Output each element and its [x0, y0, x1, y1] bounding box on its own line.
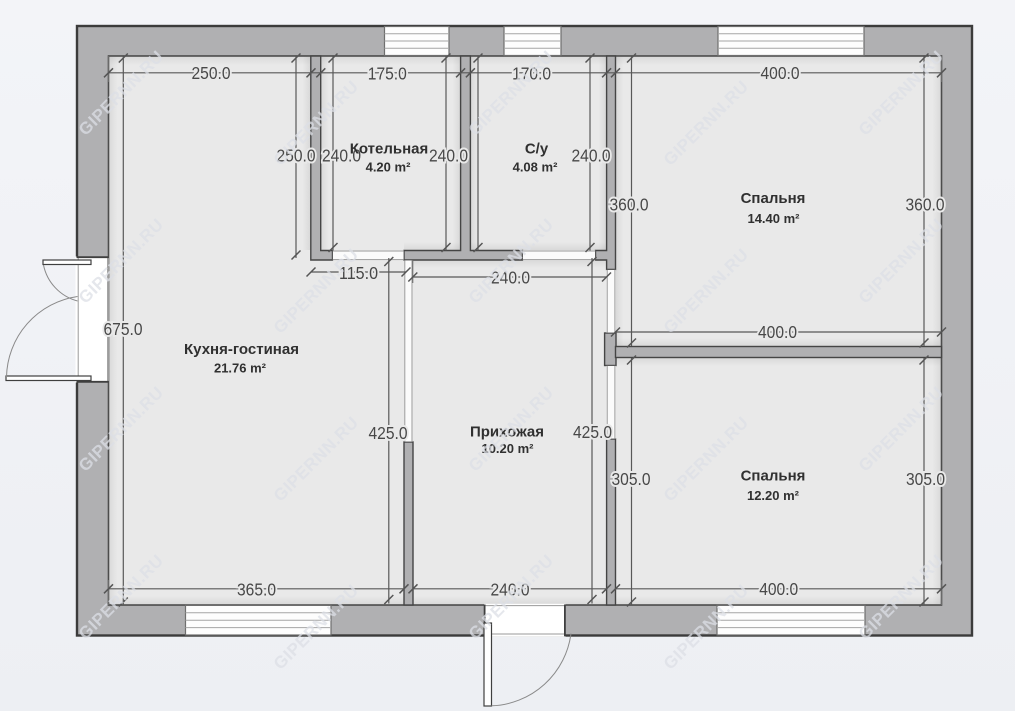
svg-text:365.0: 365.0 [237, 579, 276, 599]
svg-text:360.0: 360.0 [610, 194, 649, 214]
svg-text:4.20 m²: 4.20 m² [366, 159, 411, 174]
svg-text:240.0: 240.0 [572, 145, 611, 165]
svg-text:Спальня: Спальня [741, 468, 806, 485]
svg-text:400.0: 400.0 [758, 322, 797, 342]
svg-text:12.20 m²: 12.20 m² [747, 488, 800, 503]
svg-text:675.0: 675.0 [104, 319, 143, 339]
svg-text:175.0: 175.0 [368, 63, 407, 83]
svg-text:240.0: 240.0 [429, 145, 468, 165]
svg-text:14.40 m²: 14.40 m² [747, 211, 800, 226]
svg-text:425.0: 425.0 [369, 423, 408, 443]
svg-text:Кухня-гостиная: Кухня-гостиная [184, 341, 299, 358]
svg-text:Котельная: Котельная [350, 141, 429, 158]
svg-text:С/у: С/у [525, 141, 549, 158]
svg-text:425.0: 425.0 [573, 422, 612, 442]
svg-text:305.0: 305.0 [612, 469, 651, 489]
svg-text:400.0: 400.0 [759, 579, 798, 599]
svg-text:Спальня: Спальня [741, 190, 806, 207]
svg-text:21.76 m²: 21.76 m² [214, 360, 267, 375]
svg-text:250.0: 250.0 [192, 63, 231, 83]
svg-text:305.0: 305.0 [906, 469, 945, 489]
svg-text:400.0: 400.0 [761, 63, 800, 83]
svg-text:4.08 m²: 4.08 m² [513, 159, 558, 174]
svg-text:360.0: 360.0 [906, 194, 945, 214]
